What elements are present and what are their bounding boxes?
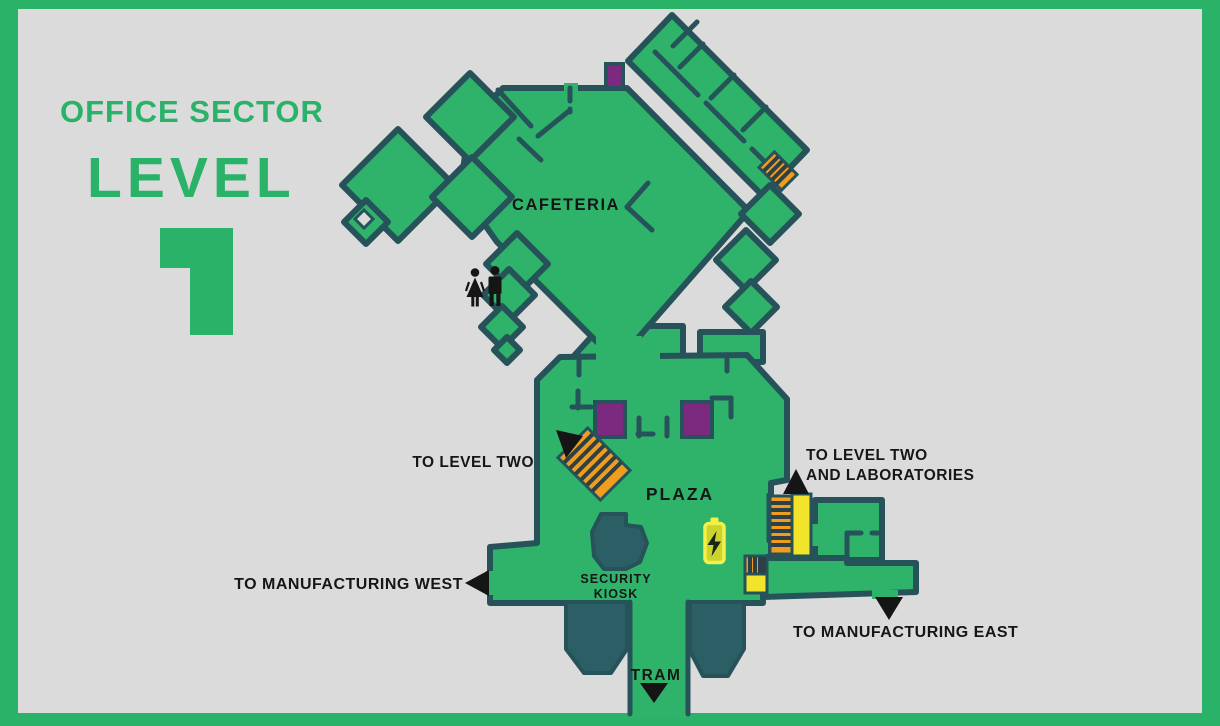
security-kiosk-label-line1: SECURITY	[580, 572, 651, 586]
office-sector-level1-map-page: OFFICE SECTOR LEVEL CAFETERIA PLAZA SECU…	[0, 0, 1220, 726]
elevator-marker	[595, 402, 625, 437]
to-level-two-labs-label-line2: AND LABORATORIES	[806, 467, 974, 484]
to-manufacturing-east-label: TO MANUFACTURING EAST	[793, 624, 1018, 641]
to-level-two-labs-label-line1: TO LEVEL TWO	[806, 447, 928, 464]
tram-platform	[690, 602, 744, 676]
facility-map: OFFICE SECTOR LEVEL CAFETERIA PLAZA SECU…	[0, 0, 1220, 726]
charger-icon	[705, 518, 724, 563]
stairs-marker-southeast	[745, 556, 767, 593]
tram-platform	[566, 602, 627, 673]
sector-title: OFFICE SECTOR	[60, 94, 324, 129]
elevator-marker	[606, 64, 623, 88]
lift-marker	[792, 494, 811, 556]
level-word: LEVEL	[87, 146, 296, 210]
elevator-marker	[682, 402, 712, 437]
to-manufacturing-west-label: TO MANUFACTURING WEST	[234, 576, 463, 593]
cafeteria-label: CAFETERIA	[512, 196, 620, 214]
plaza-area	[490, 355, 787, 603]
stairs-marker-east	[770, 494, 811, 556]
plaza-label: PLAZA	[646, 484, 714, 504]
lift-marker	[745, 574, 767, 593]
security-kiosk-label-line2: KIOSK	[594, 587, 639, 601]
tram-corridor	[630, 600, 688, 718]
to-level-two-label: TO LEVEL TWO	[412, 454, 534, 471]
tram-label: TRAM	[631, 667, 682, 684]
